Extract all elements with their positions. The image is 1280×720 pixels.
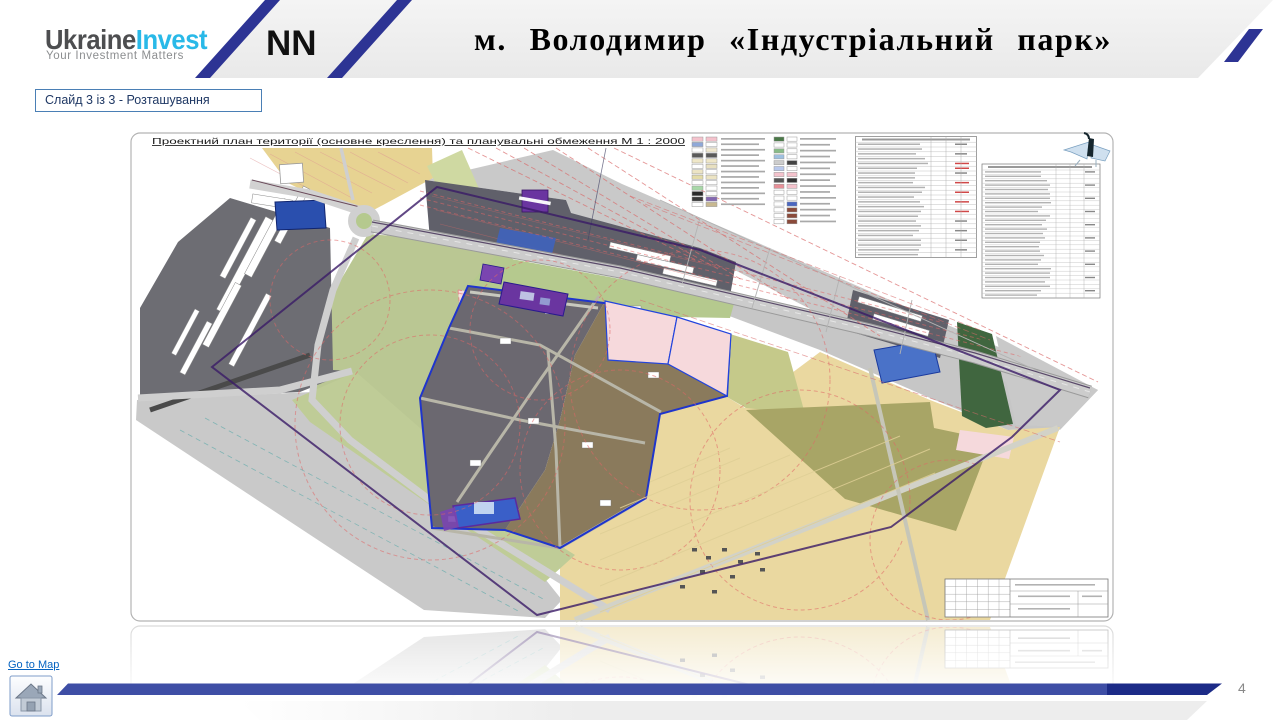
svg-text:Проектний план території (осно: Проектний план території (основне кресле… — [152, 136, 685, 146]
